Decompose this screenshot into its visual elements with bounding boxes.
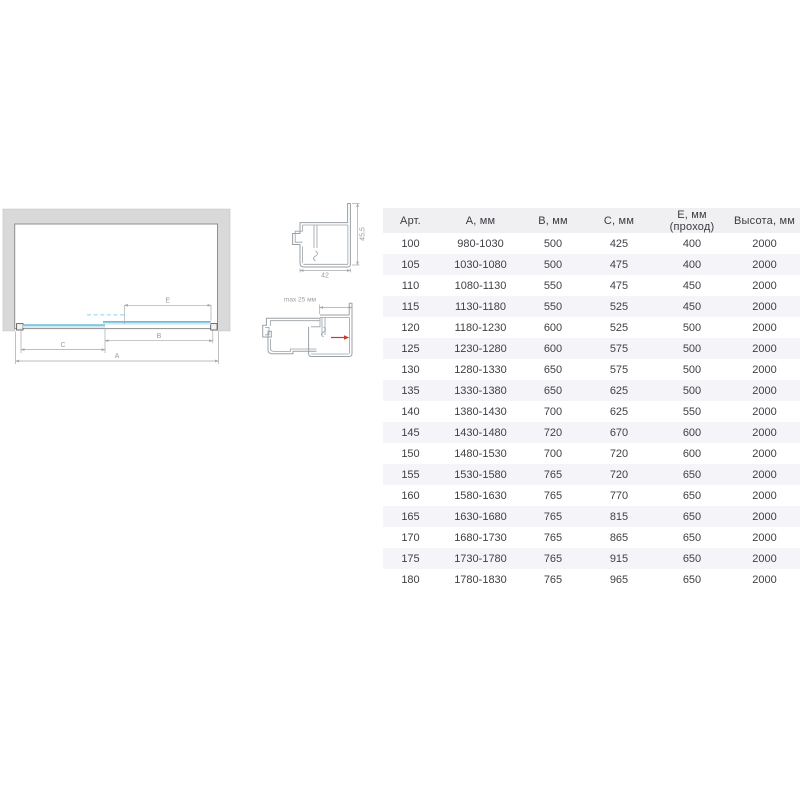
table-cell: 650 xyxy=(655,548,729,569)
table-cell: 720 xyxy=(583,443,655,464)
clip-symbol xyxy=(314,251,318,261)
table-cell: 1330-1380 xyxy=(438,380,523,401)
table-cell: 500 xyxy=(523,254,583,275)
table-cell: 525 xyxy=(583,296,655,317)
table-cell: 525 xyxy=(583,317,655,338)
table-cell: 1230-1280 xyxy=(438,338,523,359)
table-cell: 1430-1480 xyxy=(438,422,523,443)
table-cell: 135 xyxy=(383,380,438,401)
spec-table: Арт.А, ммВ, ммС, ммЕ, мм (проход)Высота,… xyxy=(383,208,800,590)
dimension-C xyxy=(21,329,105,354)
wall-profile-left xyxy=(17,324,23,330)
dim-label-a: A xyxy=(115,353,120,360)
profile-width-label: 42 xyxy=(321,273,329,280)
table-cell: 2000 xyxy=(729,359,800,380)
table-cell: 1380-1430 xyxy=(438,401,523,422)
table-cell: 110 xyxy=(383,275,438,296)
table-cell: 125 xyxy=(383,338,438,359)
table-cell: 100 xyxy=(383,233,438,254)
table-cell: 115 xyxy=(383,296,438,317)
table-cell: 475 xyxy=(583,254,655,275)
table-cell: 1180-1230 xyxy=(438,317,523,338)
table-cell: 965 xyxy=(583,569,655,590)
table-cell: 1580-1630 xyxy=(438,485,523,506)
table-cell: 765 xyxy=(523,548,583,569)
table-cell: 2000 xyxy=(729,233,800,254)
table-cell: 2000 xyxy=(729,275,800,296)
table-cell: 2000 xyxy=(729,401,800,422)
table-cell: 2000 xyxy=(729,254,800,275)
table-cell: 600 xyxy=(655,443,729,464)
table-cell: 175 xyxy=(383,548,438,569)
table-cell: 600 xyxy=(523,317,583,338)
max-adjust-label: max 25 мм xyxy=(284,297,317,304)
dim-label-b: B xyxy=(157,333,162,340)
dim-label-e: E xyxy=(165,298,170,305)
table-cell: 160 xyxy=(383,485,438,506)
table-row: 1551530-15807657206502000 xyxy=(383,464,800,485)
table-cell: 2000 xyxy=(729,485,800,506)
table-row: 1701680-17307658656502000 xyxy=(383,527,800,548)
table-cell: 400 xyxy=(655,254,729,275)
table-cell: 180 xyxy=(383,569,438,590)
column-header: Арт. xyxy=(383,208,438,233)
table-cell: 625 xyxy=(583,380,655,401)
table-cell: 130 xyxy=(383,359,438,380)
drawing-svg: E B C A xyxy=(0,195,380,400)
table-cell: 155 xyxy=(383,464,438,485)
table-cell: 1080-1130 xyxy=(438,275,523,296)
table-cell: 2000 xyxy=(729,464,800,485)
table-cell: 980-1030 xyxy=(438,233,523,254)
table-row: 1801780-18307659656502000 xyxy=(383,569,800,590)
table-cell: 500 xyxy=(655,338,729,359)
wall-profile-right xyxy=(211,324,217,330)
table-cell: 720 xyxy=(523,422,583,443)
column-header: В, мм xyxy=(523,208,583,233)
table-cell: 1480-1530 xyxy=(438,443,523,464)
table-row: 1601580-16307657706502000 xyxy=(383,485,800,506)
table-row: 1501480-15307007206002000 xyxy=(383,443,800,464)
table-cell: 625 xyxy=(583,401,655,422)
table-cell: 170 xyxy=(383,527,438,548)
spec-table-body: 100980-103050042540020001051030-10805004… xyxy=(383,233,800,590)
table-cell: 650 xyxy=(523,359,583,380)
column-header: Высота, мм xyxy=(729,208,800,233)
table-cell: 425 xyxy=(583,233,655,254)
table-cell: 765 xyxy=(523,569,583,590)
table-cell: 2000 xyxy=(729,338,800,359)
table-cell: 650 xyxy=(655,527,729,548)
table-cell: 500 xyxy=(523,233,583,254)
table-cell: 2000 xyxy=(729,296,800,317)
table-cell: 1780-1830 xyxy=(438,569,523,590)
table-cell: 915 xyxy=(583,548,655,569)
table-cell: 650 xyxy=(655,506,729,527)
table-cell: 650 xyxy=(655,485,729,506)
table-cell: 550 xyxy=(523,296,583,317)
table-row: 100980-10305004254002000 xyxy=(383,233,800,254)
table-cell: 1280-1330 xyxy=(438,359,523,380)
table-cell: 1630-1680 xyxy=(438,506,523,527)
table-cell: 140 xyxy=(383,401,438,422)
table-cell: 1130-1180 xyxy=(438,296,523,317)
adjust-arrow xyxy=(331,335,349,340)
table-cell: 2000 xyxy=(729,548,800,569)
profile-section-adjustable xyxy=(263,303,352,356)
table-cell: 650 xyxy=(655,464,729,485)
table-cell: 765 xyxy=(523,485,583,506)
table-cell: 600 xyxy=(655,422,729,443)
table-row: 1201180-12306005255002000 xyxy=(383,317,800,338)
table-cell: 650 xyxy=(655,569,729,590)
column-header: С, мм xyxy=(583,208,655,233)
table-cell: 2000 xyxy=(729,569,800,590)
max-adjust-dim xyxy=(320,305,353,315)
column-header: Е, мм (проход) xyxy=(655,208,729,233)
table-cell: 650 xyxy=(523,380,583,401)
table-cell: 2000 xyxy=(729,380,800,401)
table-cell: 500 xyxy=(655,359,729,380)
table-row: 1351330-13806506255002000 xyxy=(383,380,800,401)
table-cell: 575 xyxy=(583,338,655,359)
table-cell: 765 xyxy=(523,527,583,548)
table-cell: 105 xyxy=(383,254,438,275)
table-cell: 500 xyxy=(655,317,729,338)
table-cell: 1030-1080 xyxy=(438,254,523,275)
table-cell: 700 xyxy=(523,401,583,422)
table-row: 1651630-16807658156502000 xyxy=(383,506,800,527)
technical-drawing: E B C A xyxy=(0,195,380,400)
table-cell: 2000 xyxy=(729,506,800,527)
table-row: 1051030-10805004754002000 xyxy=(383,254,800,275)
table-cell: 720 xyxy=(583,464,655,485)
table-cell: 765 xyxy=(523,464,583,485)
table-cell: 1730-1780 xyxy=(438,548,523,569)
spec-table-header-row: Арт.А, ммВ, ммС, ммЕ, мм (проход)Высота,… xyxy=(383,208,800,233)
page: E B C A xyxy=(0,0,800,800)
table-cell: 150 xyxy=(383,443,438,464)
table-cell: 2000 xyxy=(729,422,800,443)
table-row: 1151130-11805505254502000 xyxy=(383,296,800,317)
table-row: 1451430-14807206706002000 xyxy=(383,422,800,443)
table-cell: 815 xyxy=(583,506,655,527)
table-cell: 475 xyxy=(583,275,655,296)
spec-table-container: Арт.А, ммВ, ммС, ммЕ, мм (проход)Высота,… xyxy=(383,208,800,590)
table-cell: 670 xyxy=(583,422,655,443)
table-cell: 600 xyxy=(523,338,583,359)
dim-label-c: C xyxy=(60,342,65,349)
table-cell: 450 xyxy=(655,275,729,296)
table-cell: 865 xyxy=(583,527,655,548)
table-cell: 765 xyxy=(523,506,583,527)
table-cell: 2000 xyxy=(729,527,800,548)
table-cell: 1680-1730 xyxy=(438,527,523,548)
table-cell: 2000 xyxy=(729,443,800,464)
table-cell: 700 xyxy=(523,443,583,464)
table-cell: 575 xyxy=(583,359,655,380)
table-row: 1401380-14307006255502000 xyxy=(383,401,800,422)
table-row: 1751730-17807659156502000 xyxy=(383,548,800,569)
table-cell: 145 xyxy=(383,422,438,443)
column-header: А, мм xyxy=(438,208,523,233)
table-cell: 2000 xyxy=(729,317,800,338)
profile-section-top xyxy=(293,204,351,268)
table-cell: 550 xyxy=(523,275,583,296)
table-row: 1101080-11305504754502000 xyxy=(383,275,800,296)
table-cell: 500 xyxy=(655,380,729,401)
table-cell: 165 xyxy=(383,506,438,527)
table-row: 1301280-13306505755002000 xyxy=(383,359,800,380)
table-cell: 550 xyxy=(655,401,729,422)
table-row: 1251230-12806005755002000 xyxy=(383,338,800,359)
table-cell: 120 xyxy=(383,317,438,338)
profile-height-label: 45,5 xyxy=(360,227,367,241)
enclosure-outline xyxy=(15,224,218,329)
table-cell: 770 xyxy=(583,485,655,506)
table-cell: 1530-1580 xyxy=(438,464,523,485)
table-cell: 400 xyxy=(655,233,729,254)
table-cell: 450 xyxy=(655,296,729,317)
